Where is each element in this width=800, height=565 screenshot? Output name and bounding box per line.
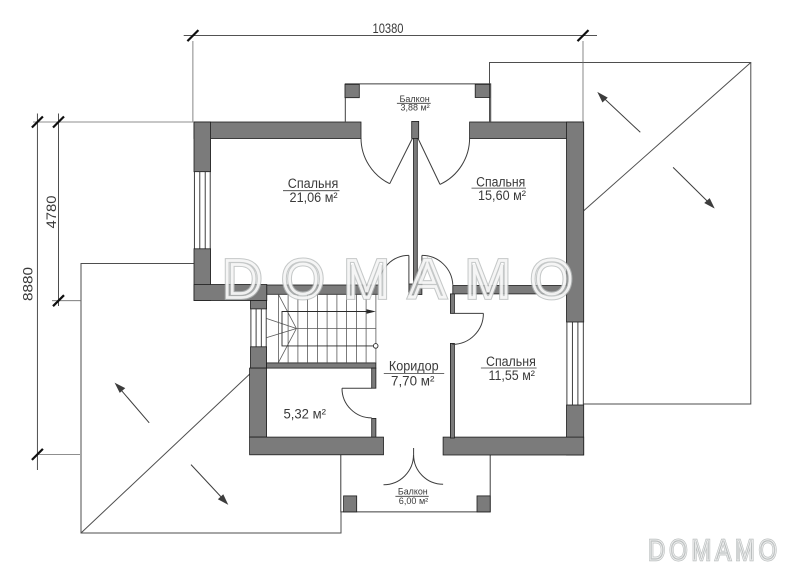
svg-text:DOMAMO: DOMAMO bbox=[648, 533, 781, 565]
svg-text:7,70 м²: 7,70 м² bbox=[391, 373, 435, 388]
svg-text:10380: 10380 bbox=[373, 20, 404, 36]
svg-text:Спальня: Спальня bbox=[486, 354, 536, 369]
svg-text:8880: 8880 bbox=[21, 267, 36, 301]
svg-text:Коридор: Коридор bbox=[389, 359, 439, 374]
svg-text:Спальня: Спальня bbox=[288, 176, 339, 191]
svg-text:5,32 м²: 5,32 м² bbox=[283, 406, 326, 422]
svg-text:3,88 м²: 3,88 м² bbox=[401, 103, 430, 113]
svg-text:4780: 4780 bbox=[44, 196, 59, 229]
svg-text:6,00 м²: 6,00 м² bbox=[399, 496, 428, 506]
svg-text:15,60 м²: 15,60 м² bbox=[478, 188, 526, 203]
svg-text:21,06 м²: 21,06 м² bbox=[290, 190, 339, 205]
svg-text:Спальня: Спальня bbox=[476, 174, 525, 189]
svg-text:11,55 м²: 11,55 м² bbox=[489, 368, 536, 383]
